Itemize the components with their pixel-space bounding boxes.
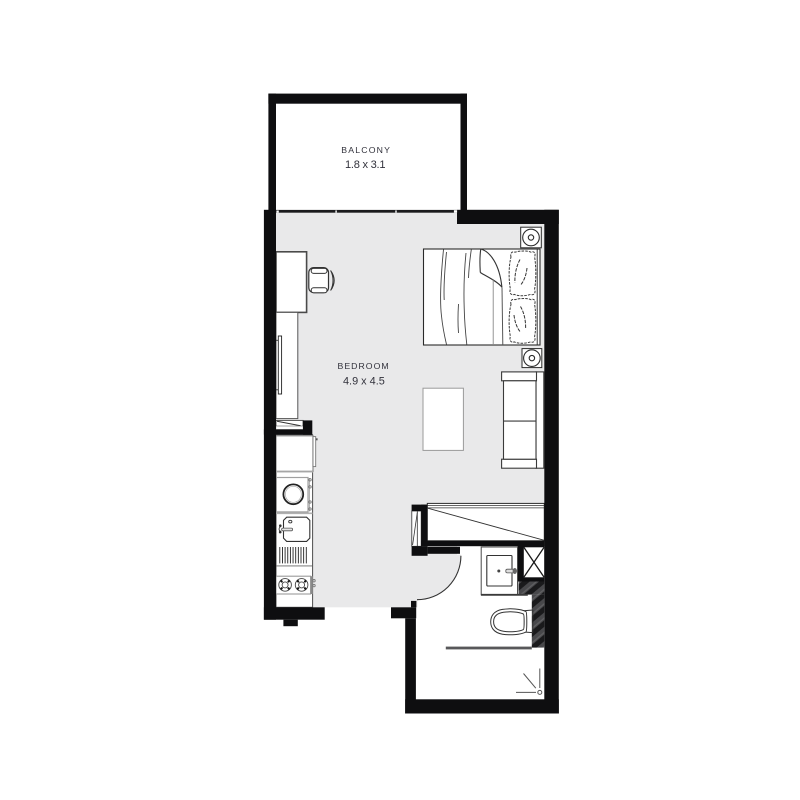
svg-text:1.8 x 3.1: 1.8 x 3.1 bbox=[345, 159, 385, 171]
svg-text:BALCONY: BALCONY bbox=[341, 145, 391, 155]
svg-text:BEDROOM: BEDROOM bbox=[337, 361, 389, 371]
svg-text:4.9 x 4.5: 4.9 x 4.5 bbox=[343, 375, 385, 387]
